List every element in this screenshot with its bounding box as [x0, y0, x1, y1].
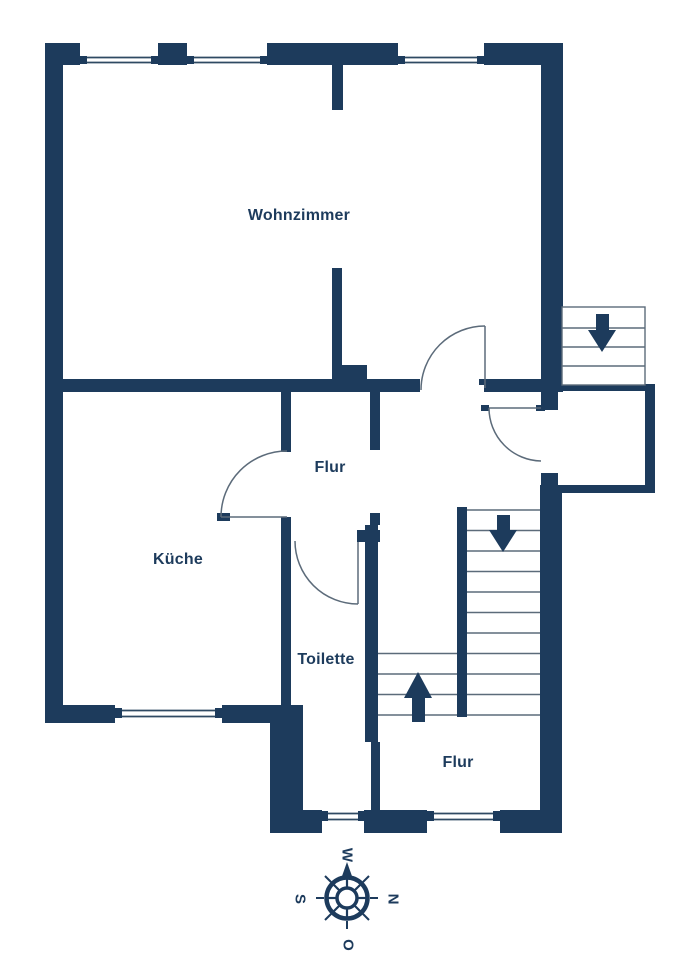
wall-right-upper [541, 43, 563, 392]
wall-right-lower [540, 485, 562, 833]
wall-toilette-right-main [365, 525, 378, 742]
toilette-door-arc [295, 541, 358, 604]
exterior-staircase [562, 307, 645, 385]
window-tick [427, 811, 434, 821]
window-tick [477, 56, 484, 64]
walls [45, 43, 655, 833]
room-label-toilette: Toilette [297, 651, 354, 669]
compass-letter-north: N [385, 894, 402, 905]
entry-door-arc [489, 408, 541, 461]
room-label-kueche: Küche [153, 551, 203, 569]
wohnzimmer-door-tick [479, 379, 488, 385]
wall-wohnzimmer-bottom-right [484, 379, 563, 392]
floor-plan: Wohnzimmer Flur Küche Toilette Flur W N … [0, 0, 698, 960]
entry-door-tick-left [481, 405, 489, 411]
wall-kueche-right-lower [281, 517, 291, 705]
compass-needle-icon [341, 862, 353, 879]
window-tick [358, 811, 364, 821]
wall-bottom-seg-1 [303, 810, 322, 833]
wall-kueche-bottom-right [222, 705, 303, 723]
window-tick [398, 56, 405, 64]
wohnzimmer-door-arc [421, 326, 485, 390]
wall-toilette-door-jamb [357, 530, 380, 542]
room-label-wohnzimmer: Wohnzimmer [248, 207, 350, 225]
window-tick [215, 708, 222, 718]
wall-wohnzimmer-stub-top [332, 63, 343, 110]
doors [221, 326, 541, 604]
wall-kueche-right-upper [281, 392, 291, 452]
compass-rose [316, 862, 378, 929]
wall-toilette-left-column [270, 723, 303, 833]
compass-letter-south: S [292, 894, 309, 904]
wall-bottom-seg-3 [500, 810, 562, 833]
wall-flur-stair-stub [370, 390, 380, 450]
wall-toilette-right-lower [371, 742, 380, 810]
wall-wohnzimmer-bottom-left [45, 379, 420, 392]
room-label-flur-mitte: Flur [314, 459, 345, 477]
wall-kueche-bottom-left [45, 705, 115, 723]
wall-stair-stringer [457, 507, 467, 717]
window-tick [115, 708, 122, 718]
window-tick [260, 56, 267, 64]
stairs-down-arrow-icon [489, 515, 517, 552]
wall-bottom-seg-2 [364, 810, 427, 833]
wall-landing-right [645, 384, 655, 493]
compass-letter-west: W [339, 848, 356, 862]
wall-wohnzimmer-stub-bottom [332, 268, 342, 392]
wall-top-pier-2 [158, 43, 187, 65]
wall-landing-bottom [557, 485, 655, 493]
wall-toilette-right-cap [370, 513, 380, 525]
kueche-door-arc [221, 451, 287, 517]
room-label-flur-unten: Flur [442, 754, 473, 772]
window-tick [493, 811, 500, 821]
window-tick [187, 56, 194, 64]
wall-top-pier-3 [267, 43, 398, 65]
window-tick [151, 56, 158, 64]
compass-letter-east: O [340, 939, 357, 951]
floor-plan-drawing [0, 0, 698, 960]
window-tick [322, 811, 328, 821]
wall-wohnzimmer-stub-foot [342, 365, 367, 379]
window-tick [80, 56, 87, 64]
